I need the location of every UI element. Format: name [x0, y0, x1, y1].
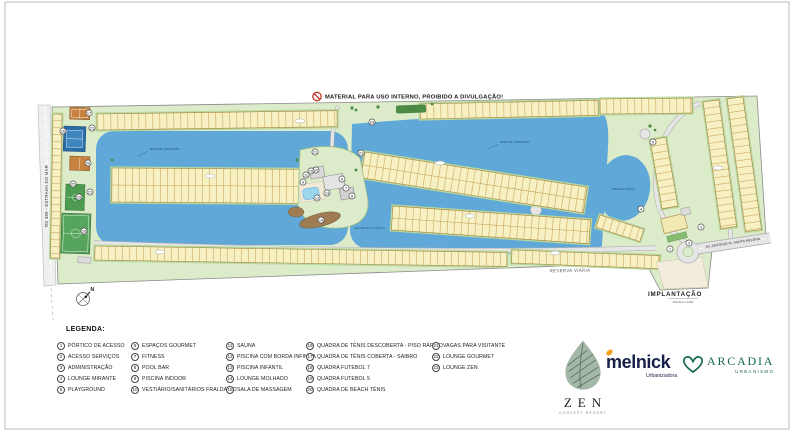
svg-text:16: 16	[61, 129, 65, 133]
map-marker: 17	[86, 110, 92, 116]
map-marker: 21	[89, 125, 95, 131]
svg-text:N: N	[91, 287, 95, 293]
svg-text:21: 21	[313, 150, 317, 154]
map-marker: 23	[369, 119, 375, 125]
map-marker: 1	[667, 246, 673, 252]
north-arrow: N	[77, 287, 95, 306]
svg-text:7: 7	[345, 186, 347, 190]
map-marker: 21	[358, 150, 364, 156]
arcadia-heart-icon	[681, 353, 705, 375]
water-label: ESPELHO D'ÁGUA	[355, 226, 385, 230]
map-marker: 19	[76, 194, 82, 200]
svg-text:4: 4	[640, 207, 642, 211]
svg-text:1: 1	[669, 247, 671, 251]
arcadia-logo: ARCADIA URBANISMO	[681, 353, 786, 375]
sheet-subtitle: ESCALA 1:1000	[673, 300, 694, 304]
road-bottom-label: RESERVA VIÁRIA	[550, 268, 591, 274]
svg-text:14: 14	[319, 218, 323, 222]
map-marker: 6	[339, 176, 345, 182]
lot-strip	[418, 99, 600, 121]
sheet-title: IMPLANTAÇÃO	[648, 291, 702, 298]
zen-leaf-icon	[560, 339, 606, 391]
svg-text:21: 21	[359, 151, 363, 155]
service-building	[78, 257, 91, 263]
map-marker: 2	[686, 240, 692, 246]
map-marker: 16	[60, 128, 66, 134]
map-marker: 21	[312, 149, 318, 155]
map-marker: 8	[349, 193, 355, 199]
svg-text:12: 12	[315, 196, 319, 200]
map-marker: 7	[343, 185, 349, 191]
road-left-label: RS 389 - ESTRADA DO MAR	[44, 165, 49, 227]
svg-text:11: 11	[304, 173, 308, 177]
zen-logo: ZEN CONCEPT RESORT	[552, 339, 614, 415]
map-marker: 12	[314, 195, 320, 201]
svg-text:22: 22	[71, 182, 75, 186]
zen-tagline: CONCEPT RESORT	[552, 411, 614, 415]
svg-text:20: 20	[86, 161, 90, 165]
svg-text:10: 10	[314, 168, 318, 172]
sheet-title-block: IMPLANTAÇÃO ESCALA 1:1000	[648, 291, 702, 304]
zen-wordmark: ZEN	[557, 396, 614, 409]
svg-text:2: 2	[688, 241, 690, 245]
svg-text:18: 18	[82, 229, 86, 233]
map-marker: 9	[300, 179, 306, 185]
svg-text:9: 9	[302, 180, 304, 184]
svg-text:21: 21	[90, 126, 94, 130]
map-marker: 13	[324, 190, 330, 196]
arcadia-tagline: URBANISMO	[707, 369, 774, 374]
svg-text:23: 23	[370, 120, 374, 124]
svg-text:13: 13	[325, 191, 329, 195]
warning-text: MATERIAL PARA USO INTERNO, PROIBIDO A DI…	[325, 94, 503, 101]
svg-text:15: 15	[309, 169, 313, 173]
svg-text:3: 3	[700, 225, 702, 229]
svg-text:21: 21	[88, 190, 92, 194]
map-marker: 20	[85, 160, 91, 166]
tennis-court-covered	[63, 126, 86, 152]
arcadia-wordmark: ARCADIA	[707, 355, 774, 367]
svg-text:5: 5	[652, 140, 654, 144]
map-marker: 4	[638, 206, 644, 212]
map-marker: 15	[308, 168, 314, 174]
water-label-2: ESPELHO D'ÁGUA	[612, 187, 635, 191]
svg-text:17: 17	[87, 111, 91, 115]
map-marker: 18	[81, 228, 87, 234]
soccer-field-7	[61, 213, 91, 254]
map-marker: 21	[87, 189, 93, 195]
svg-text:6: 6	[341, 177, 343, 181]
map-marker: 5	[650, 139, 656, 145]
map-marker: 14	[318, 217, 324, 223]
lot-strip	[598, 96, 693, 115]
map-marker: 22	[70, 181, 76, 187]
svg-text:19: 19	[77, 195, 81, 199]
svg-text:8: 8	[351, 194, 353, 198]
warning-banner: MATERIAL PARA USO INTERNO, PROIBIDO A DI…	[313, 92, 503, 100]
map-marker: 3	[698, 224, 704, 230]
